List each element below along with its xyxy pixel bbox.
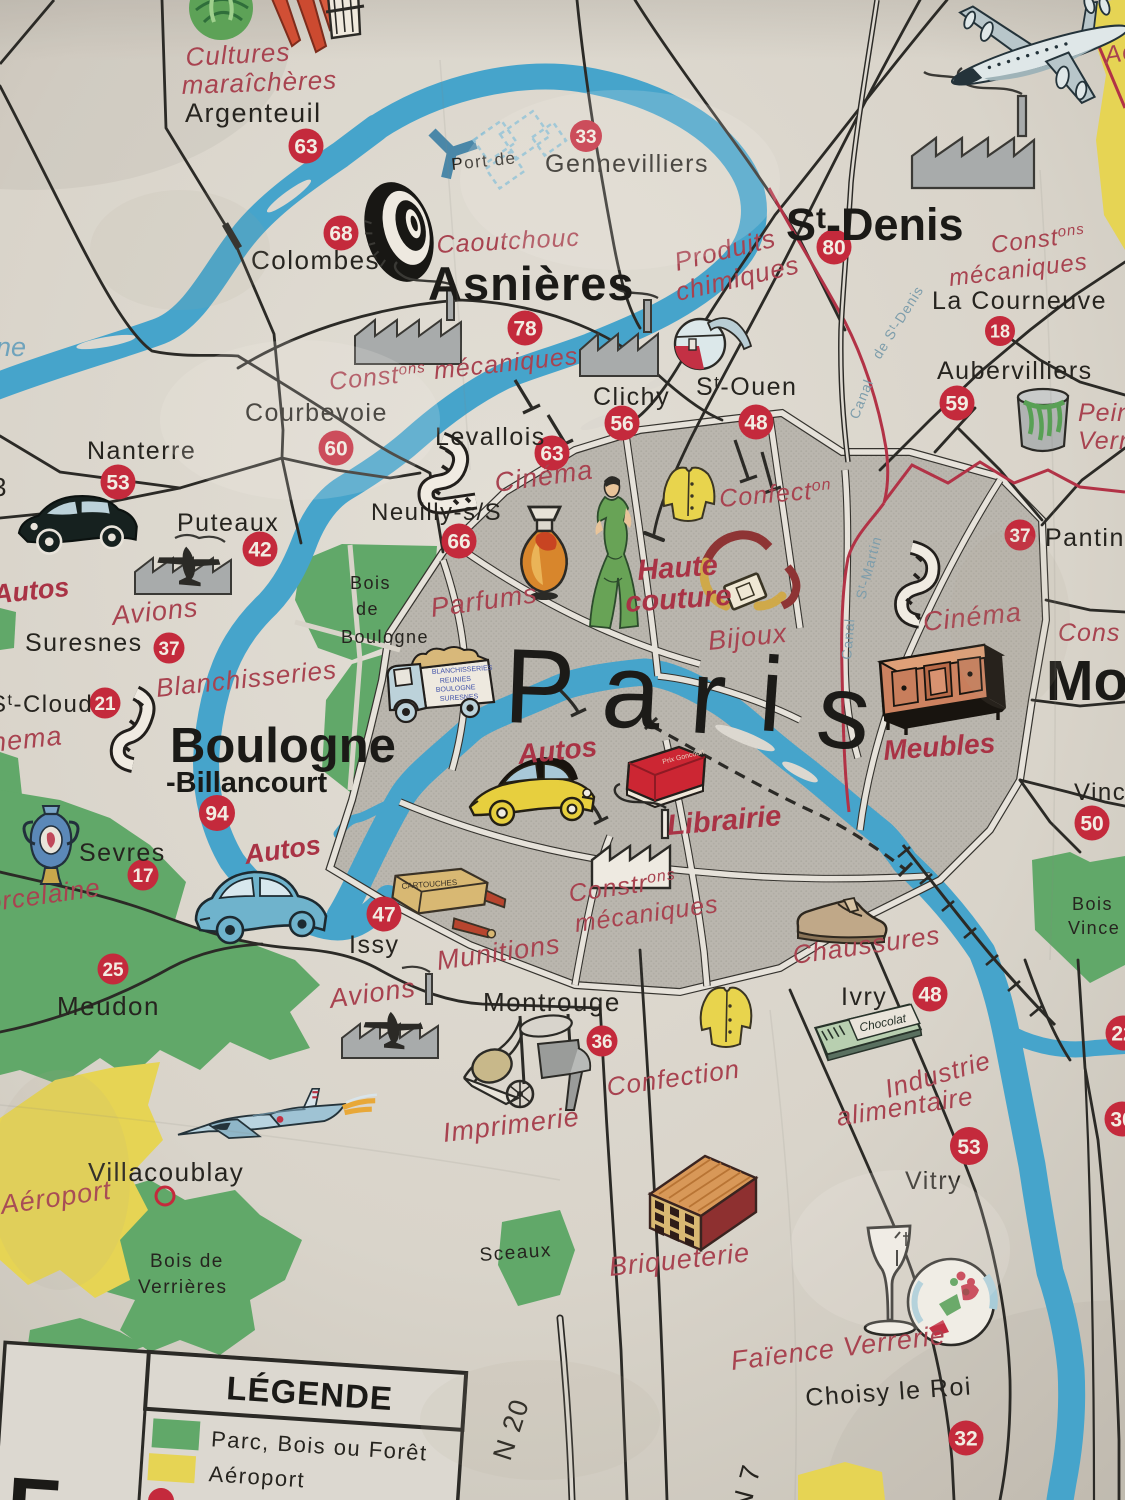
svg-text:Montrouge: Montrouge bbox=[483, 987, 621, 1017]
svg-text:3: 3 bbox=[0, 472, 8, 502]
svg-text:Colombes: Colombes bbox=[251, 245, 380, 275]
svg-text:ne: ne bbox=[0, 332, 26, 362]
svg-text:48: 48 bbox=[744, 412, 768, 435]
svg-text:P: P bbox=[502, 627, 577, 747]
svg-text:St-Denis: St-Denis bbox=[786, 199, 964, 250]
svg-text:78: 78 bbox=[513, 318, 537, 341]
svg-text:94: 94 bbox=[205, 803, 229, 826]
svg-text:17: 17 bbox=[132, 866, 153, 887]
svg-text:F: F bbox=[3, 1458, 63, 1500]
svg-text:Sevres: Sevres bbox=[79, 839, 166, 867]
svg-text:Neuilly-s/S: Neuilly-s/S bbox=[371, 499, 502, 526]
svg-text:68: 68 bbox=[329, 223, 353, 246]
svg-text:21: 21 bbox=[94, 694, 116, 715]
svg-text:St-Ouen: St-Ouen bbox=[696, 373, 797, 401]
svg-text:47: 47 bbox=[372, 904, 395, 927]
svg-text:Meudon: Meudon bbox=[57, 991, 160, 1021]
svg-text:37: 37 bbox=[158, 639, 179, 660]
svg-text:66: 66 bbox=[447, 531, 470, 554]
svg-text:-Billancourt: -Billancourt bbox=[166, 767, 327, 799]
svg-text:53: 53 bbox=[957, 1136, 980, 1159]
svg-text:Peint: Peint bbox=[1078, 399, 1125, 427]
svg-text:Pantin: Pantin bbox=[1045, 524, 1125, 552]
svg-text:Verre: Verre bbox=[1078, 427, 1125, 455]
svg-text:a: a bbox=[599, 631, 664, 752]
svg-text:56: 56 bbox=[610, 413, 633, 436]
svg-text:30: 30 bbox=[1110, 1109, 1125, 1132]
svg-text:32: 32 bbox=[954, 1428, 977, 1451]
svg-text:St-Cloud: St-Cloud bbox=[0, 691, 93, 718]
svg-text:Bois: Bois bbox=[350, 573, 391, 593]
svg-text:maraîchères: maraîchères bbox=[181, 65, 337, 100]
svg-text:Aubervilliers: Aubervilliers bbox=[937, 357, 1093, 385]
svg-text:Clichy: Clichy bbox=[593, 383, 670, 411]
svg-text:42: 42 bbox=[248, 539, 271, 562]
svg-text:Boulogne: Boulogne bbox=[341, 627, 429, 647]
svg-text:Ivry: Ivry bbox=[841, 983, 887, 1011]
svg-text:63: 63 bbox=[294, 136, 317, 159]
svg-text:22: 22 bbox=[1111, 1023, 1125, 1046]
svg-text:Verrières: Verrières bbox=[138, 1277, 228, 1298]
svg-text:Puteaux: Puteaux bbox=[177, 509, 279, 537]
svg-text:50: 50 bbox=[1080, 813, 1103, 836]
svg-text:18: 18 bbox=[990, 322, 1010, 342]
svg-text:Levallois: Levallois bbox=[435, 423, 546, 451]
svg-text:Boulogne: Boulogne bbox=[170, 719, 396, 773]
svg-text:48: 48 bbox=[918, 984, 942, 1007]
svg-text:Argenteuil: Argenteuil bbox=[185, 98, 322, 128]
svg-text:Suresnes: Suresnes bbox=[25, 629, 143, 657]
svg-text:Vince: Vince bbox=[1068, 918, 1120, 938]
svg-text:36: 36 bbox=[591, 1032, 612, 1053]
svg-text:Bois: Bois bbox=[1072, 894, 1113, 914]
svg-text:59: 59 bbox=[945, 393, 968, 416]
svg-text:Bois de: Bois de bbox=[150, 1251, 224, 1272]
svg-text:Issy: Issy bbox=[349, 931, 399, 959]
svg-text:Vince: Vince bbox=[1074, 779, 1125, 806]
svg-text:53: 53 bbox=[106, 472, 129, 495]
svg-text:25: 25 bbox=[102, 960, 124, 981]
svg-text:La Courneuve: La Courneuve bbox=[932, 287, 1107, 315]
svg-text:de: de bbox=[356, 599, 379, 619]
